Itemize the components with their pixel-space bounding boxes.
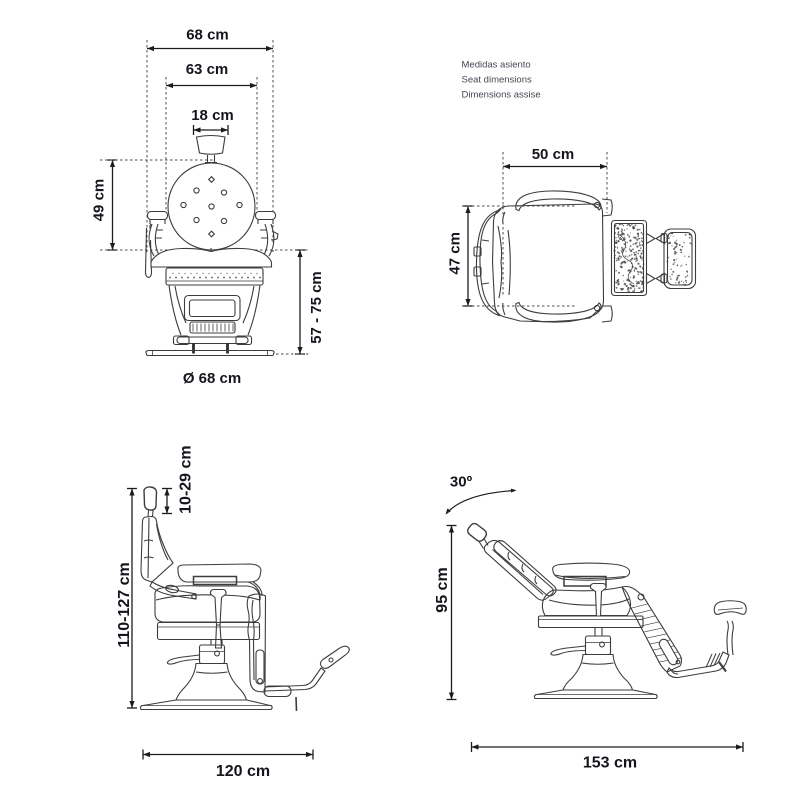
svg-text:10-29 cm: 10-29 cm [178, 445, 195, 513]
svg-text:49 cm: 49 cm [91, 179, 108, 222]
svg-text:63 cm: 63 cm [186, 61, 229, 78]
svg-text:47 cm: 47 cm [447, 232, 464, 275]
svg-text:110-127 cm: 110-127 cm [116, 562, 133, 647]
svg-text:30º: 30º [450, 474, 473, 491]
svg-text:Seat dimensions: Seat dimensions [462, 75, 532, 86]
svg-text:95 cm: 95 cm [434, 567, 451, 612]
svg-text:50 cm: 50 cm [532, 146, 575, 163]
svg-text:Ø 68 cm: Ø 68 cm [183, 370, 241, 387]
svg-text:153 cm: 153 cm [583, 755, 637, 772]
svg-text:120 cm: 120 cm [216, 763, 270, 780]
svg-text:18 cm: 18 cm [191, 107, 234, 124]
svg-text:Dimensions assise: Dimensions assise [462, 90, 541, 101]
svg-text:68 cm: 68 cm [186, 27, 229, 44]
svg-text:57 - 75 cm: 57 - 75 cm [308, 271, 325, 344]
svg-text:Medidas asiento: Medidas asiento [462, 60, 531, 71]
